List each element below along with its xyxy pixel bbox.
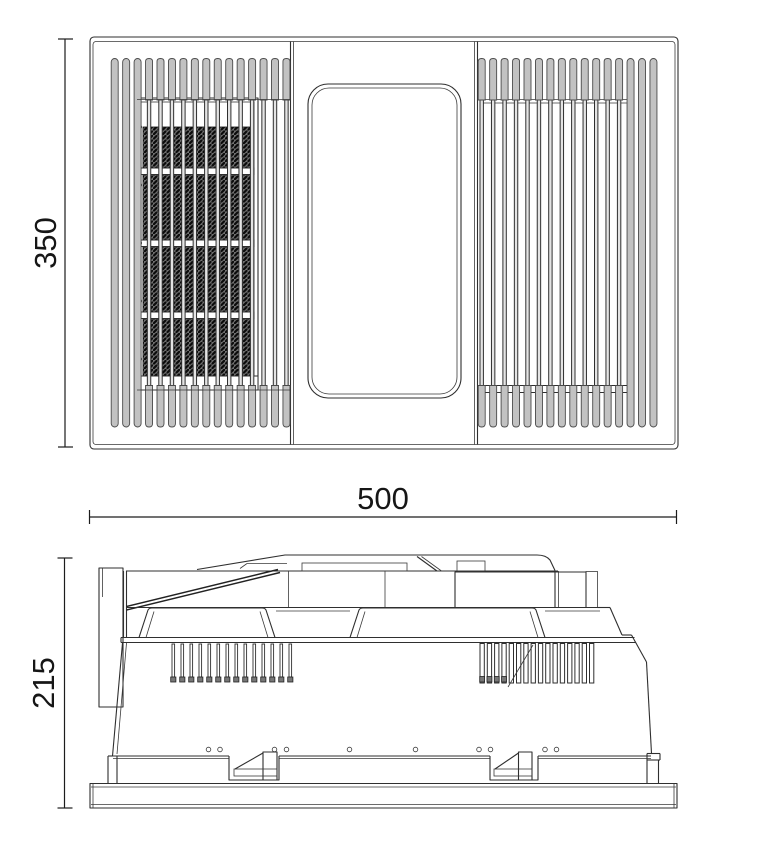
mounting-bracket-left	[229, 752, 279, 780]
technical-drawing-canvas: 350 500 215	[0, 0, 763, 855]
dimension-side-height: 215	[26, 558, 73, 808]
heatsink-pins-right	[480, 644, 594, 688]
side-view	[90, 555, 677, 808]
duct-spigot	[455, 572, 586, 608]
light-lens	[308, 84, 461, 398]
base-fascia	[90, 784, 677, 809]
side-height-label: 215	[26, 657, 61, 709]
heatsink-pins-left	[171, 644, 293, 682]
vent-holes	[206, 747, 559, 752]
heater-unit-dimension-drawing: 350 500 215	[0, 0, 763, 855]
mounting-plate	[121, 638, 636, 643]
center-panel-dividers	[291, 42, 478, 445]
front-view	[90, 37, 678, 449]
right-louver-bank	[478, 59, 657, 428]
dimension-front-height: 350	[28, 39, 73, 447]
lamp-housing-left	[139, 608, 275, 638]
dimension-front-width: 500	[90, 481, 677, 524]
lamp-housing-right	[350, 608, 545, 638]
right-louver-ribs	[480, 100, 621, 386]
mounting-bracket-right	[490, 752, 538, 780]
front-width-label: 500	[357, 481, 409, 516]
front-height-label: 350	[28, 217, 63, 269]
left-louver-bank	[111, 59, 290, 428]
